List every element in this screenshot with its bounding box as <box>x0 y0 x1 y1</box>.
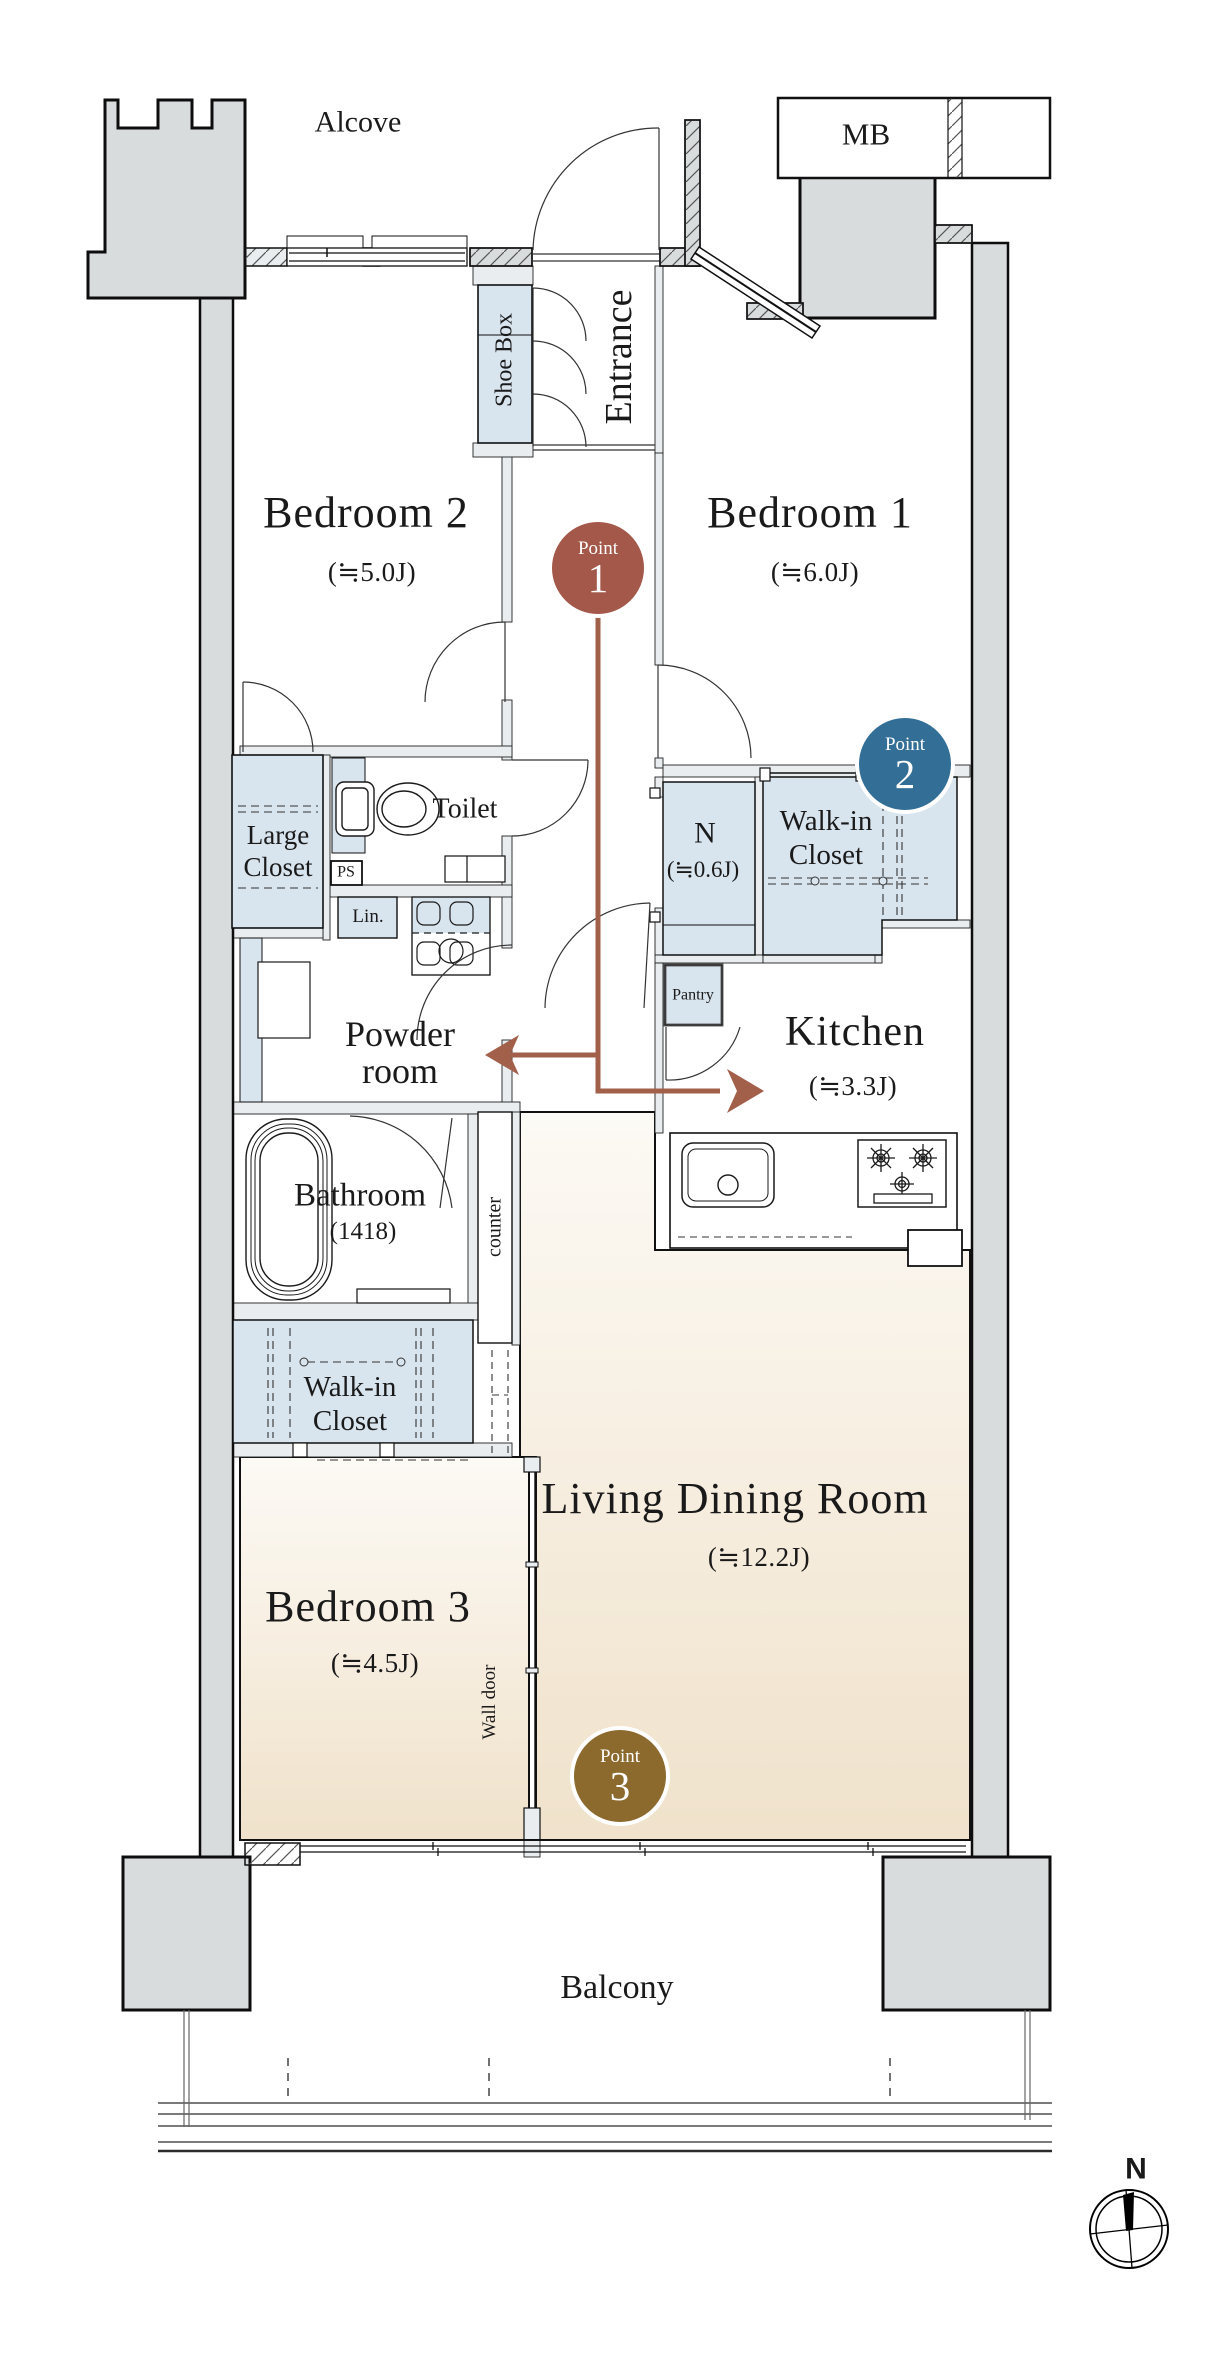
compass-north-label: N <box>1125 2153 1147 2185</box>
entrance-label: Entrance <box>600 289 640 424</box>
compass-icon <box>1090 2190 1168 2268</box>
toilet-label: Toilet <box>433 794 498 823</box>
point-3-number: 3 <box>610 1768 631 1805</box>
point-3-badge: Point 3 <box>574 1730 666 1822</box>
alcove-label: Alcove <box>315 106 402 138</box>
stove-icon <box>858 1140 946 1207</box>
sink-icon <box>682 1143 774 1207</box>
toilet-icon <box>336 782 439 836</box>
wall-door-label: Wall door <box>480 1665 500 1740</box>
bedroom2-name: Bedroom 2 <box>263 490 469 536</box>
bathroom-size: (1418) <box>330 1219 397 1245</box>
walk-in-closet-lower-label: Walk-in Closet <box>304 1370 397 1438</box>
mb-label: MB <box>842 119 890 152</box>
bedroom2-size: (≒5.0J) <box>328 558 416 586</box>
large-closet-label: Large Closet <box>243 820 312 884</box>
point-1-number: 1 <box>588 560 609 597</box>
kitchen-size: (≒3.3J) <box>809 1072 897 1100</box>
n-closet-name: N <box>694 817 716 849</box>
shoe-box-label: Shoe Box <box>492 313 517 407</box>
entrance-threshold <box>533 254 660 450</box>
counter-label: counter <box>485 1197 506 1257</box>
toilet-shelf <box>445 856 505 882</box>
mb-box <box>778 98 1050 178</box>
counter-strip <box>478 1112 512 1455</box>
bedroom3-name: Bedroom 3 <box>265 1584 471 1630</box>
bath-step <box>357 1289 450 1303</box>
living-dining-size: (≒12.2J) <box>708 1543 810 1571</box>
point-2-number: 2 <box>895 756 916 793</box>
n-closet-size: (≒0.6J) <box>667 858 739 882</box>
floor-plan-page: Alcove MB Entrance Shoe Box Bedroom 2 (≒… <box>0 0 1216 2378</box>
living-dining-name: Living Dining Room <box>541 1476 928 1522</box>
bedroom1-name: Bedroom 1 <box>707 490 913 536</box>
south-windows <box>240 1840 972 1856</box>
vanity-icon <box>258 962 310 1038</box>
powder-room-line1: Powder <box>345 1016 455 1054</box>
ps-box-kitchen <box>908 1230 962 1266</box>
point-2-badge: Point 2 <box>859 718 951 810</box>
bedroom2-window <box>287 236 467 266</box>
bathroom-name: Bathroom <box>294 1179 426 1214</box>
powder-room-line2: room <box>362 1053 438 1091</box>
washer-icon <box>412 897 490 975</box>
bedroom3-size: (≒4.5J) <box>331 1649 419 1677</box>
linen-label: Lin. <box>352 907 383 927</box>
pantry-label: Pantry <box>672 988 714 1005</box>
bedroom1-size: (≒6.0J) <box>771 558 859 586</box>
point-1-badge: Point 1 <box>552 522 644 614</box>
ps-top-label: PS <box>337 865 355 882</box>
kitchen-name: Kitchen <box>785 1010 925 1054</box>
balcony-railing <box>158 2010 1052 2151</box>
balcony-label: Balcony <box>560 1970 673 2006</box>
walk-in-closet-upper-label: Walk-in Closet <box>780 804 873 872</box>
